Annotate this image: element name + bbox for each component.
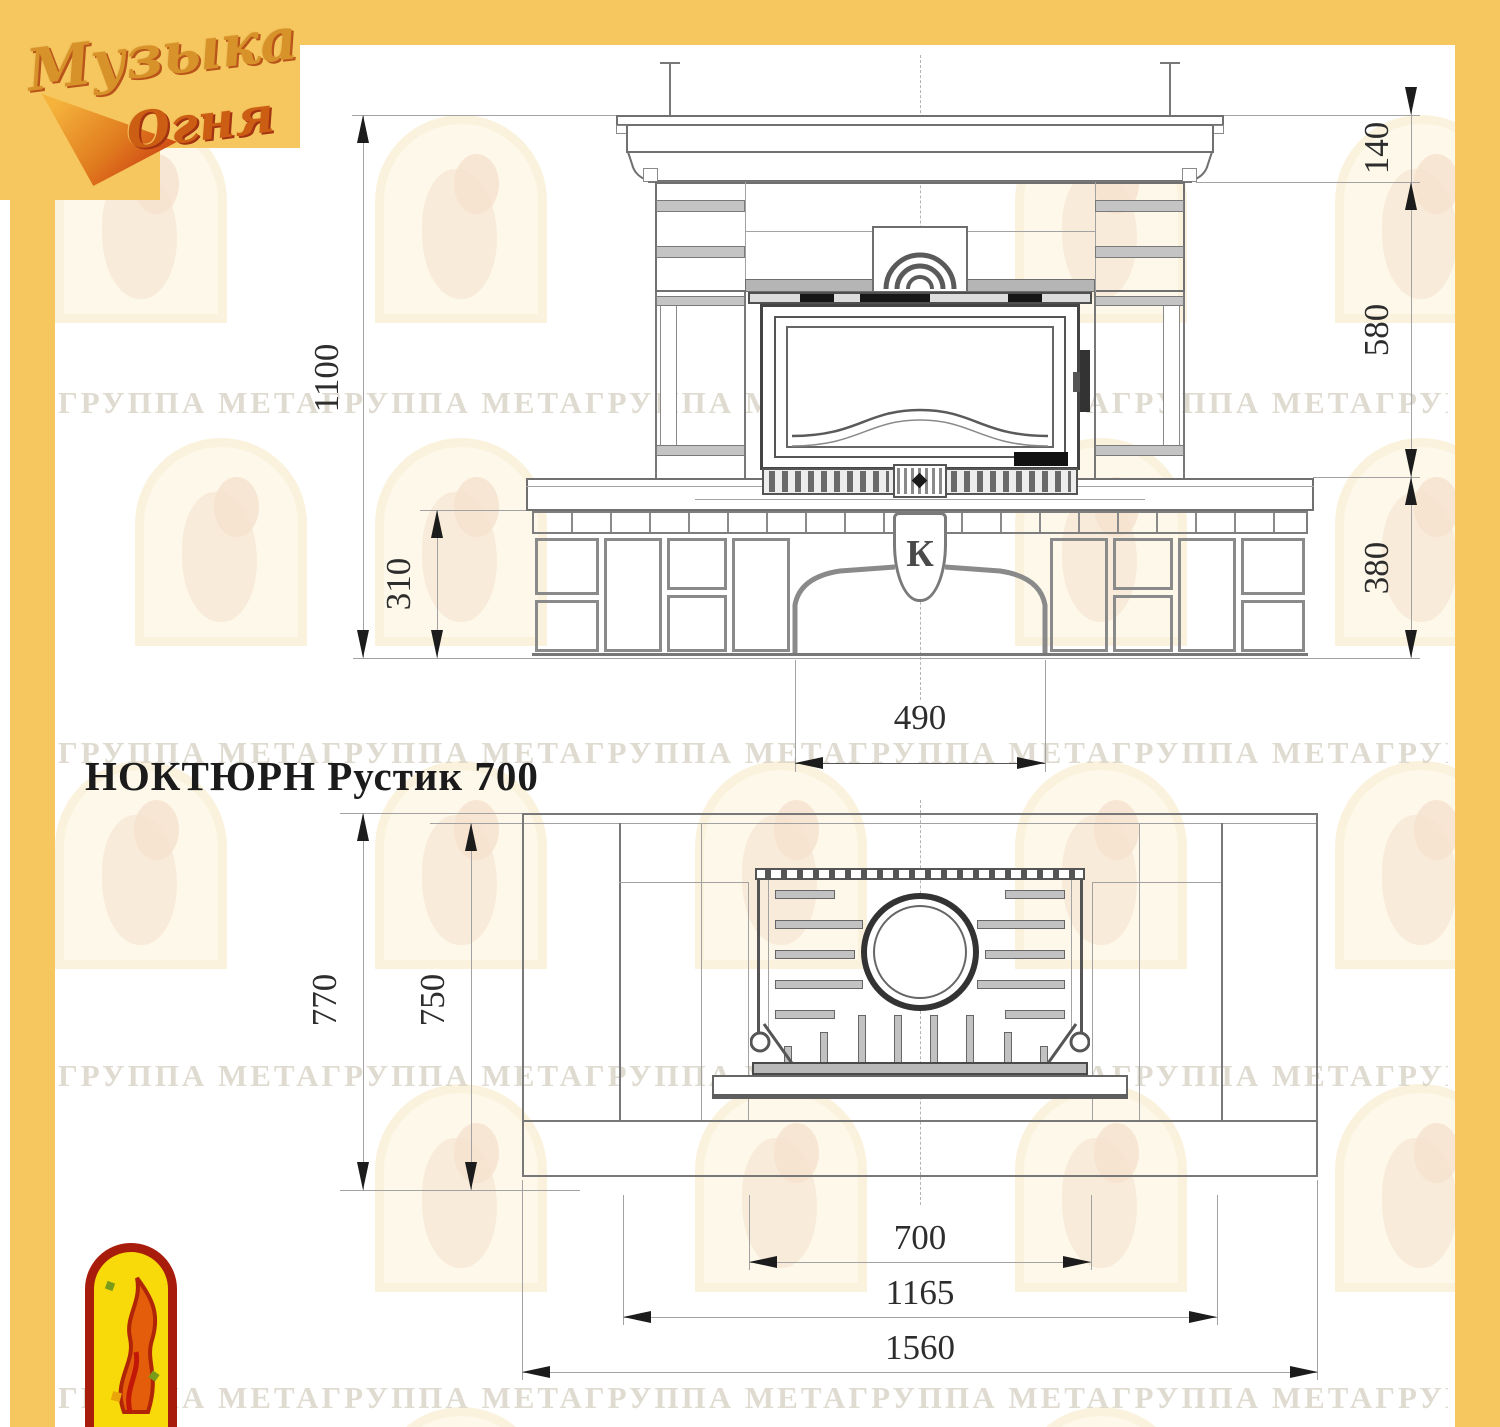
extension-line [749, 1195, 750, 1270]
dim-arrow [623, 1311, 651, 1323]
insert-top-vent [800, 294, 834, 302]
dim-label-overall-width: 1560 [845, 1328, 995, 1368]
frieze-line [745, 231, 878, 232]
extension-line [795, 660, 796, 772]
door-handle [1080, 350, 1090, 412]
joint-band [1095, 200, 1184, 212]
brand-arch-emblem [85, 1243, 177, 1427]
pilaster-inner-edge [1095, 182, 1096, 292]
insert-back-vents [765, 870, 1075, 878]
insert-side [757, 880, 760, 1040]
joint-band [656, 296, 745, 306]
cove-foot [1182, 168, 1197, 182]
glass-wave-line [786, 400, 1054, 452]
joint-band [1095, 246, 1184, 258]
arch-watermark [1015, 1084, 1187, 1292]
plan-side-edge [522, 813, 524, 1177]
brand-logo: Музыка Огня [8, 2, 308, 192]
dim-arrow [522, 1366, 550, 1378]
plan-front-edge [522, 1175, 1318, 1177]
arch-watermark [695, 1084, 867, 1292]
dim-line-490 [795, 763, 1045, 764]
lintel-band [745, 279, 878, 292]
dim-arrow [357, 813, 369, 841]
extension-line [430, 823, 522, 824]
dim-line-1165 [623, 1317, 1217, 1318]
stone [535, 538, 599, 595]
flue-pipe-cap [1160, 62, 1180, 64]
arch-watermark [1015, 761, 1187, 969]
plan-wall-inner [619, 823, 621, 1120]
pilaster-strip [660, 300, 677, 450]
arch-watermark [375, 115, 547, 323]
flue-outlet-circle [856, 888, 984, 1016]
grille-slats [769, 471, 889, 492]
plan-wall-inner [1221, 823, 1223, 1120]
stone [535, 600, 599, 652]
brand-logo-line2: Огня [123, 78, 329, 161]
extension-line [1045, 660, 1046, 772]
plan-bench-line [522, 1120, 1318, 1122]
pilaster-inner-edge [745, 182, 746, 292]
dim-label-base-height: 310 [379, 524, 419, 644]
fin [775, 950, 855, 959]
fin [775, 920, 863, 929]
flame-figure-icon [94, 1252, 168, 1422]
dim-arrow [357, 115, 369, 143]
hearth-front-line [695, 499, 1145, 500]
plan-column-line [701, 823, 702, 1120]
plan-joint-line [1092, 882, 1221, 883]
insert-side-inner [1071, 880, 1072, 1030]
dim-label-portal-width: 1165 [845, 1273, 995, 1313]
fin [977, 920, 1065, 929]
joint-band [656, 246, 745, 258]
ash-lip [1014, 452, 1068, 466]
stone [604, 538, 662, 652]
extension-line [522, 1180, 523, 1380]
joint-band [1095, 296, 1184, 306]
mantel-fascia [626, 124, 1214, 153]
dim-label-depth-body: 750 [413, 940, 453, 1060]
stone [1178, 538, 1236, 652]
dim-label-bench-height: 380 [1357, 508, 1397, 628]
dim-label-depth-total: 770 [305, 940, 345, 1060]
dim-arrow [1189, 1311, 1217, 1323]
frame-right-strip [1455, 0, 1500, 1427]
insert-side [1080, 880, 1083, 1040]
page-title: НОКТЮРН Рустик 700 [85, 752, 785, 800]
fin [977, 980, 1065, 989]
plan-joint-line [619, 882, 748, 883]
drawing-sheet: ГРУППА МЕТАГРУППА МЕТАГРУППА МЕТАГРУППА … [0, 0, 1500, 1427]
dim-label-opening-height: 580 [1357, 270, 1397, 390]
pilaster-strip [1163, 300, 1180, 450]
flue-pipe-cap [660, 62, 680, 64]
dim-line-1560 [522, 1372, 1318, 1373]
extension-line [623, 1195, 624, 1325]
dim-arrow [1405, 87, 1417, 115]
grille-slats [951, 471, 1071, 492]
extension-line [340, 1190, 580, 1191]
cove-foot [643, 168, 658, 182]
dim-label-height-total: 1100 [307, 318, 347, 438]
stone [1241, 600, 1305, 652]
dim-arrow [1290, 1366, 1318, 1378]
insert-top-vent [1008, 294, 1042, 302]
insert-side-inner [768, 880, 769, 1030]
joint-band [656, 200, 745, 212]
plan-back-edge [522, 813, 1318, 815]
flue-pipe-line [1169, 62, 1171, 115]
dim-arrow [357, 1162, 369, 1190]
door-handle-base [1073, 372, 1080, 392]
fin [775, 980, 863, 989]
extension-line [1313, 477, 1420, 478]
watermark-text: ГРУППА МЕТАГРУППА МЕТАГРУППА МЕТАГРУППА … [58, 385, 1448, 425]
arch-watermark [135, 438, 307, 646]
extension-line [340, 813, 522, 814]
joint-band [656, 445, 745, 456]
flue-pipe-line [669, 62, 671, 115]
extension-line [1217, 1195, 1218, 1325]
insert-top-vent [860, 294, 930, 302]
dim-arrow [357, 630, 369, 658]
frieze-line [962, 231, 1095, 232]
dim-label-niche-width: 490 [845, 698, 995, 738]
dim-label-firebox-width: 700 [845, 1218, 995, 1258]
watermark-text: ГРУППА МЕТАГРУППА МЕТАГРУППА МЕТАГРУППА … [58, 1380, 1448, 1420]
dim-line-770 [363, 813, 364, 1190]
stone [1241, 538, 1305, 595]
dim-line-700 [749, 1262, 1091, 1263]
hearth-plate-edge [712, 1094, 1128, 1099]
plan-back-inner-edge [522, 823, 1318, 824]
joint-band [1095, 445, 1184, 456]
frame-left-strip [10, 0, 55, 1427]
extension-line [1091, 1195, 1092, 1270]
dim-label-shelf-height: 140 [1357, 88, 1397, 208]
fin [1005, 890, 1065, 899]
dim-line-1100 [363, 115, 364, 658]
fin [775, 890, 835, 899]
insert-front-plate [752, 1062, 1088, 1075]
dim-line-750 [471, 823, 472, 1190]
plan-column-line [1139, 823, 1140, 1120]
lintel-band [962, 279, 1095, 292]
extension-line [1317, 1180, 1318, 1380]
base-bottom-line [532, 653, 1308, 656]
plan-side-edge [1316, 813, 1318, 1177]
fin [985, 950, 1065, 959]
fan-medallion [872, 226, 968, 294]
dim-line-right [1411, 87, 1412, 658]
